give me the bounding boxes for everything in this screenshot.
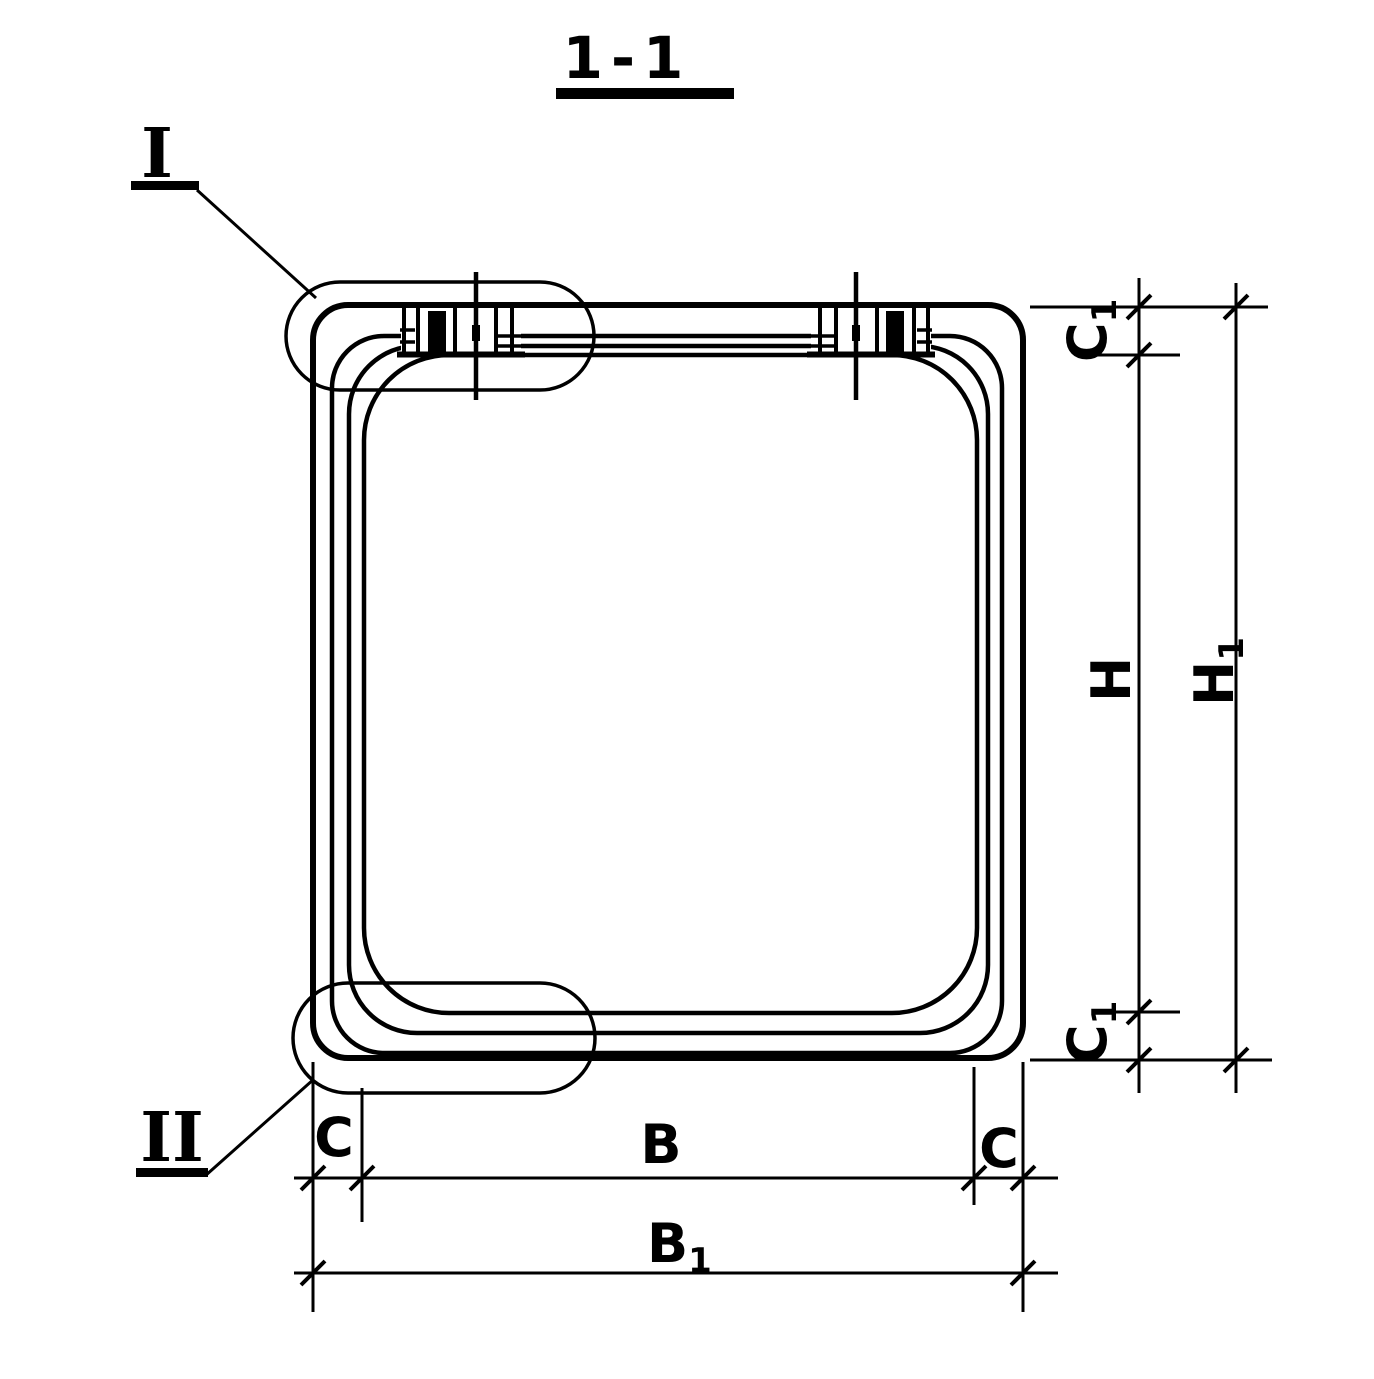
top-joint-right [807,307,935,355]
tick-marks [301,295,1248,1285]
section-drawing: 1-1 I II C1 H H1 C1 C B C B1 [0,0,1374,1379]
dim-label-c-left: C [314,1106,354,1169]
wall-line-2 [332,336,1002,1053]
leader-line-detail-1 [197,190,316,298]
detail-balloon-2 [293,983,595,1093]
joint-tongue-block [428,311,446,353]
dim-label-c1-bottom: C1 [1056,1001,1125,1064]
drawing-sheet: 1-1 I II C1 H H1 C1 C B C B1 [0,0,1374,1379]
dim-label-b: B [640,1113,681,1176]
dim-label-h: H [1080,657,1143,702]
culvert-link-section [313,305,1023,1058]
wall-line-3 [349,346,988,1033]
leader-line-detail-2 [205,1079,314,1176]
dim-label-b1: B1 [647,1212,712,1281]
extension-lines [313,307,1272,1312]
wall-inner-outline [364,355,977,1013]
section-title-underline [556,88,734,99]
detail-2-underline [136,1168,208,1177]
wall-outer-outline [313,305,1023,1058]
joint-tongue-block [886,311,904,353]
dim-label-c-right: C [979,1117,1019,1180]
detail-2-label: II [140,1098,204,1178]
top-joint-left [397,307,525,355]
detail-1-underline [131,181,199,190]
dimension-lines [294,278,1236,1273]
dim-label-h1: H1 [1183,637,1252,706]
section-title: 1-1 [563,24,692,92]
